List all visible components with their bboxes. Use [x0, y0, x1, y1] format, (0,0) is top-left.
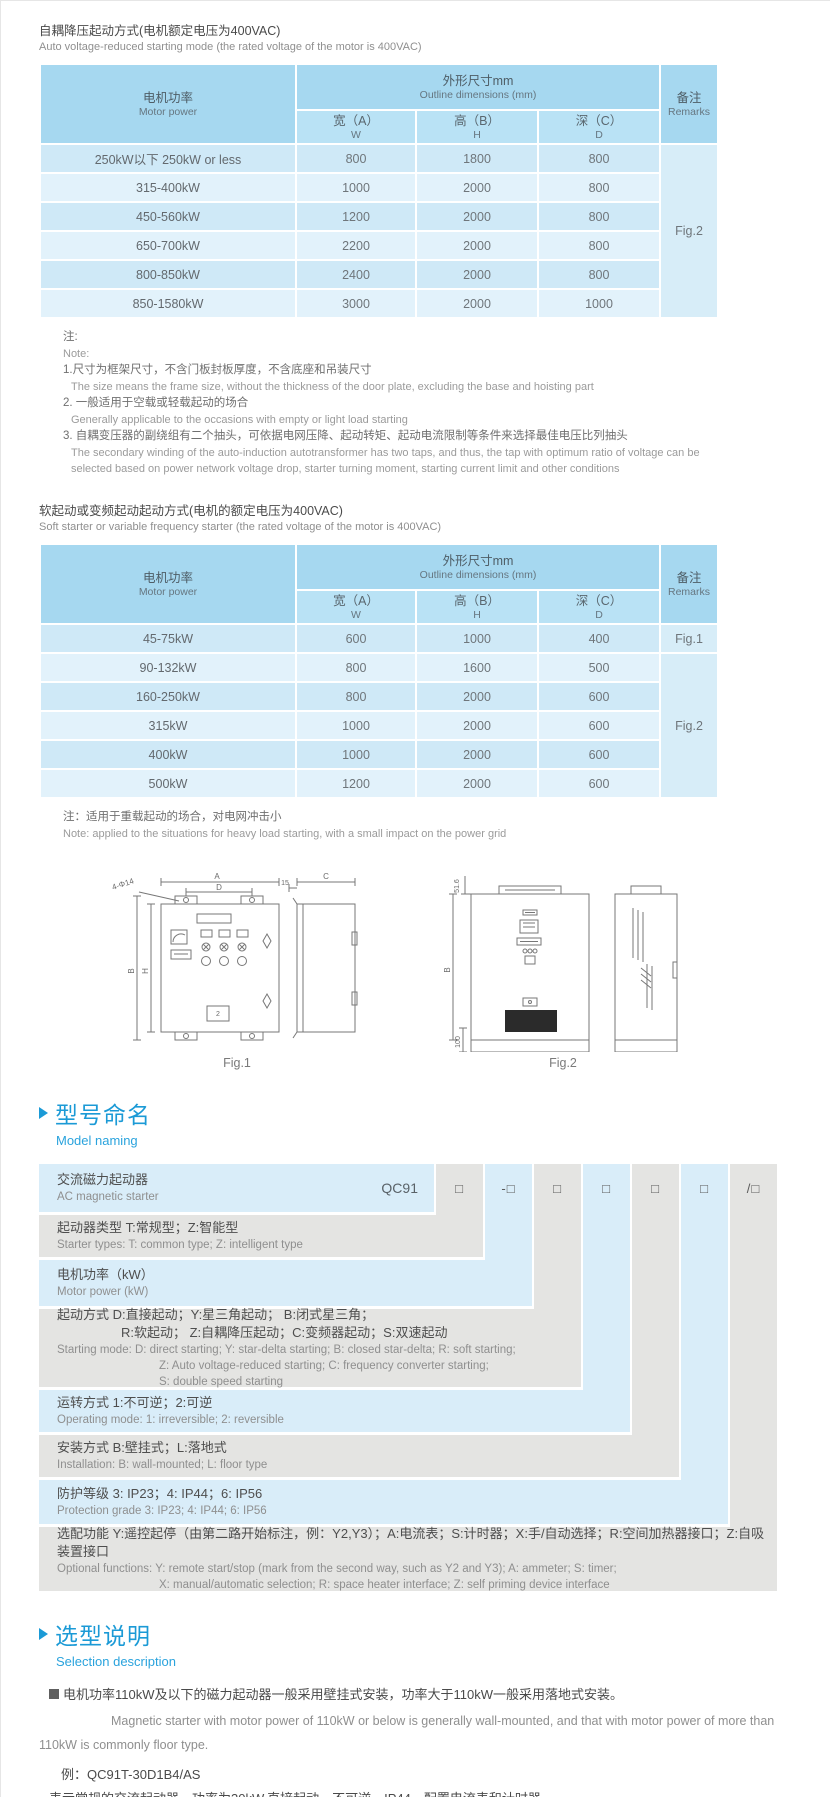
- naming-row-zh: 选配功能 Y:遥控起停（由第二路开始标注，例：Y2,Y3）；A:电流表；S:计时…: [57, 1525, 777, 1561]
- selection-bullet-zh: 电机功率110kW及以下的磁力起动器一般采用壁挂式安装，功率大于110kW一般采…: [39, 1685, 799, 1705]
- dimension-cell: 500: [538, 653, 660, 682]
- section-marker-icon: [39, 1107, 48, 1119]
- table-row: 160-250kW8002000600: [40, 682, 718, 711]
- naming-row-zh: 起动器类型 T:常规型；Z:智能型: [57, 1219, 483, 1237]
- model-naming-row: 交流磁力起动器AC magnetic starterQC91□-□□□□□/□: [39, 1164, 777, 1212]
- header-height: 高（B） H: [416, 110, 538, 144]
- figure1-caption: Fig.1: [223, 1056, 251, 1070]
- dimension-cell: 1000: [296, 173, 416, 202]
- table-row: 45-75kW6001000400Fig.1: [40, 624, 718, 653]
- dimension-cell: 600: [538, 711, 660, 740]
- table2-title-zh: 软起动或变频起动起动方式(电机的额定电压为400VAC): [39, 503, 830, 520]
- table1-title-en: Auto voltage-reduced starting mode (the …: [39, 40, 830, 55]
- dimension-cell: 2000: [416, 682, 538, 711]
- selection-heading-zh: 选型说明: [55, 1617, 151, 1651]
- note-item-en: The secondary winding of the auto-induct…: [63, 445, 703, 477]
- model-naming-section-head: 型号命名 Model naming: [39, 1096, 830, 1148]
- svg-text:B: B: [443, 967, 452, 972]
- model-digit-box: -□: [485, 1164, 532, 1212]
- dimension-cell: 800: [538, 231, 660, 260]
- dimension-cell: 2000: [416, 769, 538, 798]
- remark-cell: Fig.1: [660, 624, 718, 653]
- header-width: 宽（A） W: [296, 110, 416, 144]
- figure2-caption: Fig.2: [549, 1056, 577, 1070]
- naming-row-en: X: manual/automatic selection; R: space …: [57, 1577, 777, 1593]
- dimension-cell: 1200: [296, 202, 416, 231]
- model-naming-band: 电机功率（kW）Motor power (kW): [39, 1260, 532, 1306]
- note-item-zh: 1.尺寸为框架尺寸，不含门板封板厚度，不含底座和吊装尺寸: [63, 362, 830, 379]
- motor-power-cell: 315kW: [40, 711, 296, 740]
- motor-power-cell: 850-1580kW: [40, 289, 296, 318]
- table-row: 250kW以下 250kW or less8001800800Fig.2: [40, 144, 718, 173]
- table1-title-zh: 自耦降压起动方式(电机额定电压为400VAC): [39, 23, 830, 40]
- selection-section-head: 选型说明 Selection description: [39, 1617, 830, 1669]
- dimension-cell: 2200: [296, 231, 416, 260]
- starter-label: 交流磁力起动器AC magnetic starter: [57, 1171, 159, 1205]
- selection-example-code: 例：QC91T-30D1B4/AS: [39, 1763, 799, 1787]
- naming-row-en: Operating mode: 1: irreversible; 2: reve…: [57, 1412, 630, 1428]
- naming-row-en: Optional functions: Y: remote start/stop…: [57, 1561, 777, 1577]
- motor-power-cell: 315-400kW: [40, 173, 296, 202]
- motor-power-cell: 160-250kW: [40, 682, 296, 711]
- table-row: 800-850kW24002000800: [40, 260, 718, 289]
- table-row: 500kW12002000600: [40, 769, 718, 798]
- model-naming-band: 起动器类型 T:常规型；Z:智能型Starter types: T: commo…: [39, 1215, 483, 1257]
- svg-text:A: A: [214, 872, 220, 881]
- model-naming-band: 安装方式 B:壁挂式；L:落地式Installation: B: wall-mo…: [39, 1435, 679, 1477]
- naming-row-en: Z: Auto voltage-reduced starting; C: fre…: [57, 1358, 581, 1374]
- motor-power-cell: 450-560kW: [40, 202, 296, 231]
- header-motor-power: 电机功率 Motor power: [40, 64, 296, 144]
- naming-row-en: S: double speed starting: [57, 1374, 581, 1390]
- catalog-page: 自耦降压起动方式(电机额定电压为400VAC) Auto voltage-red…: [0, 0, 830, 1797]
- svg-text:15: 15: [281, 880, 289, 887]
- table-row: 650-700kW22002000800: [40, 231, 718, 260]
- svg-text:2: 2: [216, 1011, 220, 1018]
- model-digit-box: /□: [730, 1164, 777, 1212]
- dimension-cell: 3000: [296, 289, 416, 318]
- note-item-en: The size means the frame size, without t…: [63, 379, 703, 395]
- motor-power-cell: 650-700kW: [40, 231, 296, 260]
- naming-row-zh: 起动方式 D:直接起动；Y:星三角起动； B:闭式星三角；: [57, 1306, 581, 1324]
- wall-mounted-cabinet-drawing: A D 4-Φ14 B H: [109, 868, 365, 1052]
- dimension-cell: 800: [538, 144, 660, 173]
- svg-text:100: 100: [455, 1036, 462, 1048]
- dimension-cell: 600: [538, 740, 660, 769]
- dimension-cell: 800: [538, 173, 660, 202]
- header-height: 高（B） H: [416, 590, 538, 624]
- model-digit-box: □: [436, 1164, 483, 1212]
- naming-row-zh: 防护等级 3: IP23；4: IP44；6: IP56: [57, 1485, 728, 1503]
- table2-note: 注：适用于重载起动的场合，对电网冲击小 Note: applied to the…: [63, 809, 830, 842]
- table2-note-en: Note: applied to the situations for heav…: [63, 826, 703, 842]
- model-naming-heading-zh: 型号命名: [55, 1096, 151, 1130]
- dimension-cell: 2000: [416, 289, 538, 318]
- dimension-cell: 1000: [416, 624, 538, 653]
- header-outline-dimensions: 外形尺寸mm Outline dimensions (mm): [296, 64, 660, 110]
- figure-1: A D 4-Φ14 B H: [109, 868, 365, 1070]
- note-label-en: Note:: [63, 346, 703, 362]
- svg-text:H: H: [141, 968, 150, 974]
- model-naming-row: 选配功能 Y:遥控起停（由第二路开始标注，例：Y2,Y3）；A:电流表；S:计时…: [39, 1527, 777, 1591]
- svg-text:D: D: [216, 883, 222, 892]
- note-label-zh: 注:: [63, 329, 830, 346]
- model-naming-band: 起动方式 D:直接起动；Y:星三角起动； B:闭式星三角；R:软起动； Z:自耦…: [39, 1309, 581, 1387]
- dimension-cell: 1000: [296, 740, 416, 769]
- dimension-cell: 1600: [416, 653, 538, 682]
- model-naming-band: 防护等级 3: IP23；4: IP44；6: IP56Protection g…: [39, 1480, 728, 1524]
- motor-power-cell: 400kW: [40, 740, 296, 769]
- dimension-cell: 2000: [416, 260, 538, 289]
- dimension-cell: 2400: [296, 260, 416, 289]
- header-width: 宽（A） W: [296, 590, 416, 624]
- selection-body: 电机功率110kW及以下的磁力起动器一般采用壁挂式安装，功率大于110kW一般采…: [39, 1685, 799, 1797]
- model-naming-row: 起动方式 D:直接起动；Y:星三角起动； B:闭式星三角；R:软起动； Z:自耦…: [39, 1309, 777, 1387]
- note-item-zh: 3. 自耦变压器的副绕组有二个抽头，可依据电网压降、起动转矩、起动电流限制等条件…: [63, 428, 830, 445]
- selection-example-zh: 表示常规的交流起动器，功率为30kW,直接起动，不可逆，IP44，配置电流表和计…: [39, 1787, 799, 1797]
- dimension-cell: 800: [296, 653, 416, 682]
- svg-text:C: C: [323, 872, 329, 881]
- svg-text:51.6: 51.6: [454, 879, 461, 893]
- table1-notes: 注: Note: 1.尺寸为框架尺寸，不含门板封板厚度，不含底座和吊装尺寸The…: [63, 329, 830, 477]
- selection-para-en: Magnetic starter with motor power of 110…: [39, 1709, 799, 1757]
- table2-note-zh: 注：适用于重载起动的场合，对电网冲击小: [63, 809, 830, 826]
- naming-row-zh: 安装方式 B:壁挂式；L:落地式: [57, 1439, 679, 1457]
- dimension-cell: 800: [296, 144, 416, 173]
- header-motor-power: 电机功率 Motor power: [40, 544, 296, 624]
- motor-power-cell: 800-850kW: [40, 260, 296, 289]
- remark-cell: Fig.2: [660, 653, 718, 798]
- starter-label-en: AC magnetic starter: [57, 1189, 159, 1205]
- header-remarks: 备注 Remarks: [660, 64, 718, 144]
- dimension-cell: 2000: [416, 711, 538, 740]
- note-item-zh: 2. 一般适用于空载或轻载起动的场合: [63, 395, 830, 412]
- dimension-cell: 2000: [416, 231, 538, 260]
- table-row: 315-400kW10002000800: [40, 173, 718, 202]
- model-naming-heading-en: Model naming: [56, 1133, 830, 1148]
- starter-label-zh: 交流磁力起动器: [57, 1171, 159, 1189]
- dimension-cell: 800: [538, 202, 660, 231]
- motor-power-cell: 250kW以下 250kW or less: [40, 144, 296, 173]
- header-remarks: 备注 Remarks: [660, 544, 718, 624]
- naming-row-en: Starter types: T: common type; Z: intell…: [57, 1237, 483, 1253]
- naming-row-en: Motor power (kW): [57, 1284, 532, 1300]
- model-naming-band: 交流磁力起动器AC magnetic starterQC91: [39, 1164, 434, 1212]
- motor-power-cell: 45-75kW: [40, 624, 296, 653]
- dimension-cell: 1000: [538, 289, 660, 318]
- naming-row-en: Protection grade 3: IP23; 4: IP44; 6: IP…: [57, 1503, 728, 1519]
- naming-row-en: Starting mode: D: direct starting; Y: st…: [57, 1342, 581, 1358]
- table-row: 400kW10002000600: [40, 740, 718, 769]
- section-marker-icon: [39, 1628, 48, 1640]
- dimension-cell: 800: [296, 682, 416, 711]
- motor-power-cell: 90-132kW: [40, 653, 296, 682]
- naming-row-zh: 电机功率（kW）: [57, 1266, 532, 1284]
- dimension-cell: 1800: [416, 144, 538, 173]
- dimension-cell: 2000: [416, 202, 538, 231]
- model-naming-table: 交流磁力起动器AC magnetic starterQC91□-□□□□□/□起…: [39, 1164, 777, 1591]
- naming-row-en: Installation: B: wall-mounted; L: floor …: [57, 1457, 679, 1473]
- svg-text:4-Φ14: 4-Φ14: [111, 876, 136, 892]
- square-bullet-icon: [49, 1689, 59, 1699]
- model-digit-box: □: [681, 1164, 728, 1212]
- svg-text:B: B: [127, 968, 136, 973]
- dimension-cell: 1000: [296, 711, 416, 740]
- model-naming-row: 运转方式 1:不可逆；2:可逆Operating mode: 1: irreve…: [39, 1390, 777, 1432]
- model-naming-row: 起动器类型 T:常规型；Z:智能型Starter types: T: commo…: [39, 1215, 777, 1257]
- soft-starter-table: 电机功率 Motor power 外形尺寸mm Outline dimensio…: [39, 543, 719, 799]
- model-digit-box: □: [632, 1164, 679, 1212]
- dimension-cell: 1200: [296, 769, 416, 798]
- model-naming-row: 安装方式 B:壁挂式；L:落地式Installation: B: wall-mo…: [39, 1435, 777, 1477]
- table2-title-en: Soft starter or variable frequency start…: [39, 520, 830, 535]
- dimension-cell: 2000: [416, 740, 538, 769]
- table-row: 450-560kW12002000800: [40, 202, 718, 231]
- header-outline-dimensions: 外形尺寸mm Outline dimensions (mm): [296, 544, 660, 590]
- note-item-en: Generally applicable to the occasions wi…: [63, 412, 703, 428]
- table-row: 850-1580kW300020001000: [40, 289, 718, 318]
- model-naming-row: 电机功率（kW）Motor power (kW): [39, 1260, 777, 1306]
- remark-cell: Fig.2: [660, 144, 718, 318]
- dimension-cell: 2000: [416, 173, 538, 202]
- header-depth: 深（C） D: [538, 590, 660, 624]
- model-digit-box: □: [583, 1164, 630, 1212]
- selection-heading-en: Selection description: [56, 1654, 830, 1669]
- dimension-cell: 600: [538, 769, 660, 798]
- dimension-cell: 600: [296, 624, 416, 653]
- model-naming-band: 运转方式 1:不可逆；2:可逆Operating mode: 1: irreve…: [39, 1390, 630, 1432]
- auto-voltage-table: 电机功率 Motor power 外形尺寸mm Outline dimensio…: [39, 63, 719, 319]
- model-naming-row: 防护等级 3: IP23；4: IP44；6: IP56Protection g…: [39, 1480, 777, 1524]
- dimension-cell: 400: [538, 624, 660, 653]
- figure-2: 51.6 B 100: [435, 868, 691, 1070]
- table-row: 315kW10002000600: [40, 711, 718, 740]
- motor-power-cell: 500kW: [40, 769, 296, 798]
- dimension-cell: 800: [538, 260, 660, 289]
- model-naming-band: 选配功能 Y:遥控起停（由第二路开始标注，例：Y2,Y3）；A:电流表；S:计时…: [39, 1527, 777, 1591]
- table-row: 90-132kW8001600500Fig.2: [40, 653, 718, 682]
- dimension-figures: A D 4-Φ14 B H: [109, 868, 830, 1070]
- naming-row-zh: R:软起动； Z:自耦降压起动；C:变频器起动；S:双速起动: [57, 1324, 581, 1342]
- floor-cabinet-drawing: 51.6 B 100: [435, 868, 691, 1052]
- model-digit-box: □: [534, 1164, 581, 1212]
- header-depth: 深（C） D: [538, 110, 660, 144]
- dimension-cell: 600: [538, 682, 660, 711]
- naming-row-zh: 运转方式 1:不可逆；2:可逆: [57, 1394, 630, 1412]
- model-prefix: QC91: [381, 1180, 418, 1196]
